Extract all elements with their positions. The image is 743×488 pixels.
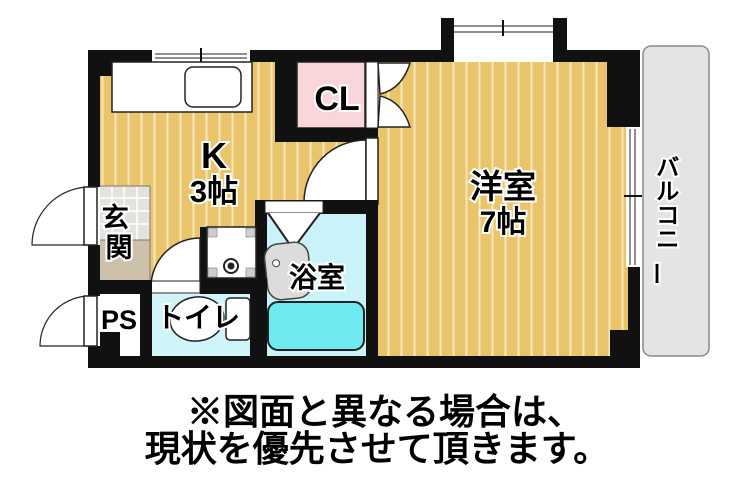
kitchen-counter bbox=[112, 62, 252, 112]
entrance-label-char: 玄 bbox=[102, 202, 129, 233]
bay-pillar-right bbox=[553, 18, 567, 62]
ps-door-leaf bbox=[84, 296, 97, 346]
bathroom-faucet bbox=[272, 259, 280, 267]
entrance-label: 玄 関 bbox=[102, 202, 137, 263]
bay-pillar-left bbox=[441, 18, 454, 62]
entrance-label-char: 関 bbox=[106, 233, 133, 263]
pan-corner bbox=[208, 228, 217, 237]
ps-top-wall bbox=[88, 280, 152, 294]
front-door-leaf bbox=[84, 187, 97, 245]
disclaimer-line1: ※図面と異なる場合は、 bbox=[187, 391, 583, 432]
balcony-label-char: ー bbox=[644, 262, 670, 285]
pan-corner bbox=[208, 268, 217, 277]
floor-plan-image: K 3帖 CL 洋室 7帖 浴室 トイレ PS 玄 関 バ ル コ ニ ー ※図… bbox=[0, 0, 743, 488]
western-room-label: 洋室 bbox=[470, 168, 536, 205]
closet-left-wall bbox=[275, 62, 297, 128]
kitchen-window bbox=[152, 48, 250, 62]
bay-window bbox=[441, 18, 567, 62]
bathroom-door-opening bbox=[265, 201, 323, 213]
balcony-label-char: ニ bbox=[656, 226, 679, 252]
western-room-size-label: 7帖 bbox=[480, 206, 527, 239]
disclaimer-line2: 現状を優先させて頂きます。 bbox=[145, 428, 609, 469]
right-pillar-top bbox=[607, 62, 640, 127]
right-wall-lower bbox=[628, 267, 640, 333]
toilet-label: トイレ bbox=[156, 302, 240, 333]
pan-drain-center bbox=[228, 263, 235, 270]
kitchen-sink bbox=[185, 67, 241, 107]
kitchen-label: K bbox=[201, 135, 227, 176]
toilet-door-leaf bbox=[151, 281, 200, 293]
balcony-label-char: バ bbox=[656, 154, 679, 180]
closet-door-track bbox=[366, 62, 378, 128]
bathroom-label: 浴室 bbox=[289, 261, 345, 293]
ps-notch bbox=[100, 332, 120, 356]
pan-corner bbox=[246, 228, 255, 237]
closet-label: CL bbox=[314, 80, 359, 118]
balcony-label-char: ル bbox=[656, 178, 679, 204]
washing-bottom-wall bbox=[200, 278, 267, 294]
pan-corner bbox=[246, 268, 255, 277]
pipe-space-label: PS bbox=[101, 305, 137, 335]
floor-plan-svg: K 3帖 CL 洋室 7帖 浴室 トイレ PS 玄 関 バ ル コ ニ ー ※図… bbox=[0, 0, 743, 488]
kitchen-size-label: 3帖 bbox=[190, 174, 238, 209]
door-leaf bbox=[366, 138, 378, 204]
kitchen-western-wall bbox=[366, 200, 378, 356]
toilet-right-wall bbox=[250, 294, 267, 356]
right-pillar-bottom bbox=[610, 330, 640, 356]
bathtub bbox=[268, 302, 364, 350]
balcony-label-char: コ bbox=[656, 202, 679, 228]
